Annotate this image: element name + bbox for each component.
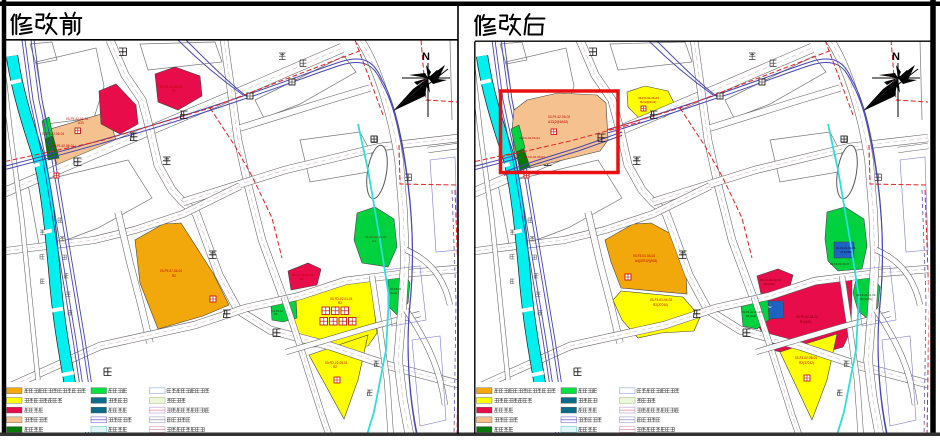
- svg-text:R1(342N): R1(342N): [860, 297, 872, 301]
- svg-text:R2(37010): R2(37010): [653, 303, 668, 307]
- svg-text:R2: R2: [172, 89, 176, 93]
- svg-text:R2(2@3G2): R2(2@3G2): [640, 100, 656, 104]
- svg-text:G1: G1: [372, 239, 376, 243]
- svg-text:R2(37012): R2(37012): [799, 361, 814, 365]
- svg-text:R2: R2: [274, 312, 278, 316]
- svg-text:03-F9-42-06-04: 03-F9-42-06-04: [519, 136, 540, 140]
- svg-text:R2: R2: [300, 277, 304, 281]
- svg-text:A33(2@6A53): A33(2@6A53): [548, 120, 568, 124]
- svg-text:R1(342): R1(342): [746, 314, 756, 318]
- svg-text:A33: A33: [78, 121, 84, 125]
- svg-text:01-04: 01-04: [390, 291, 398, 295]
- svg-text:03-F3-01-04-01: 03-F3-01-04-01: [633, 254, 655, 258]
- svg-text:03-F9-42-06-03: 03-F9-42-06-03: [524, 155, 545, 159]
- svg-text:R2: R2: [338, 301, 342, 305]
- svg-text:03-F9-07-04-01: 03-F9-07-04-01: [160, 269, 182, 273]
- svg-text:S2: S2: [768, 305, 772, 309]
- svg-text:03-F9-02-01-01: 03-F9-02-01-01: [796, 315, 818, 319]
- svg-text:03-F3-02-08-01: 03-F3-02-08-01: [795, 356, 817, 360]
- svg-text:03-F3-01-04-02: 03-F3-01-04-02: [650, 298, 672, 302]
- svg-text:R1(342): R1(342): [764, 282, 775, 286]
- svg-text:A4(37012)(903): A4(37012)(903): [635, 259, 657, 263]
- svg-text:03-F9-42-06-02: 03-F9-42-06-02: [548, 115, 570, 119]
- svg-text:VF2(398): VF2(398): [840, 250, 852, 254]
- svg-text:03-F9-42-06-01: 03-F9-42-06-01: [52, 144, 74, 148]
- svg-text:R2: R2: [333, 365, 337, 369]
- svg-text:03-F9-42-06-04: 03-F9-42-06-04: [42, 132, 64, 136]
- svg-text:R2: R2: [172, 274, 176, 278]
- svg-text:03-F9-02-03-07: 03-F9-02-03-07: [830, 262, 850, 266]
- svg-text:R1(342): R1(342): [800, 320, 812, 324]
